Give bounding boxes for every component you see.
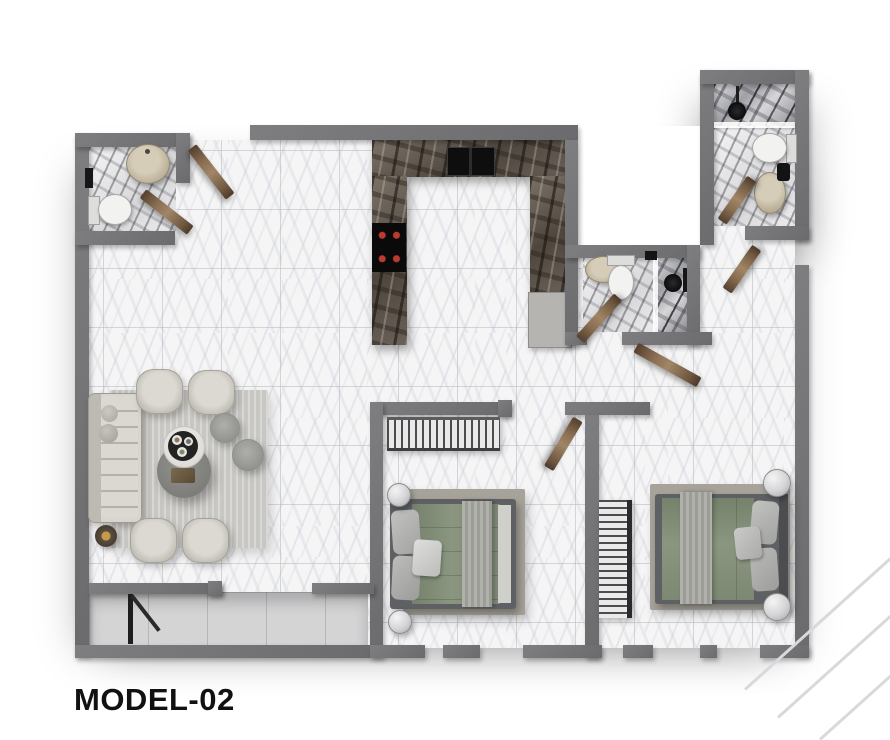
nightstand-bedroom2-bottom (763, 593, 791, 621)
armchair-top-1 (136, 369, 183, 414)
shower-head-bath-tr (728, 102, 746, 120)
table-tray-rect (171, 468, 195, 483)
pouf-2 (232, 439, 264, 471)
wall-bedrooms-divider (585, 415, 599, 658)
floor-shower-top-right (714, 84, 795, 126)
tray-plate-2 (184, 437, 193, 446)
shower-glass-bath-mid (653, 258, 658, 332)
wall-bedroom1-left (370, 402, 383, 658)
kitchen-cooktop (372, 223, 406, 272)
shower-head-bath-mid (664, 274, 682, 292)
wall-bath-tr-left (700, 70, 714, 245)
toilet-bath-tl (98, 194, 132, 225)
wall-bedroom1-top-cap (498, 400, 512, 417)
toilet-tank-bath-tr (786, 134, 797, 163)
wall-bedroom1-top (370, 402, 510, 415)
toilet-bath-tr (752, 133, 787, 163)
wall-right-outer (795, 265, 809, 655)
sofa-pillow-1 (101, 405, 118, 422)
tray-plate-3 (177, 447, 187, 457)
pouf-1 (210, 413, 240, 443)
wall-midbath-bottom (622, 332, 712, 345)
bed2-headboard (779, 494, 788, 604)
kitchen-counter-right (530, 176, 570, 292)
kitchen-sink (447, 147, 495, 176)
tray-plate-1 (172, 435, 182, 445)
wall-top-main (250, 125, 578, 140)
bed1-accent-pillow (412, 539, 442, 577)
wall-bath-tr-right (795, 70, 809, 240)
wall-balcony-inner-right (312, 583, 374, 594)
wall-bath-tl-bottom (75, 231, 175, 245)
wall-bottom-seg1 (370, 645, 425, 658)
bed1-foot-sheet (498, 505, 511, 603)
wall-bottom-seg4 (623, 645, 653, 658)
wardrobe-bedroom2 (599, 500, 632, 618)
towel-hook-bath-mid (645, 251, 657, 260)
bed2-throw (680, 492, 712, 604)
nightstand-bedroom1-bottom (388, 610, 412, 634)
wall-bottom-seg3 (523, 645, 602, 658)
wardrobe-bedroom1 (387, 417, 500, 451)
wall-bottom-seg5 (700, 645, 717, 658)
nightstand-bedroom2-top (763, 469, 791, 497)
wall-bath-tr-bottom (745, 226, 809, 240)
wall-bottom-balcony (75, 645, 370, 658)
armchair-bottom-2 (182, 518, 229, 563)
wall-bottom-seg2 (443, 645, 480, 658)
towel-rail-bath-tr (777, 163, 790, 181)
wall-bedrooms-t-horizontal (565, 402, 650, 415)
wall-bath-tl-right (176, 133, 190, 183)
faucet-bath-tl (145, 149, 150, 154)
wall-kitchen-void (565, 140, 578, 345)
bed1-throw (462, 501, 492, 607)
wall-balcony-inner-left (89, 583, 222, 594)
shower-glass-bath-tr (714, 122, 795, 128)
wall-bath-tr-top (700, 70, 809, 84)
sofa-pillow-2 (99, 424, 118, 443)
void-shaft (578, 126, 700, 245)
bed2-accent-pillow (733, 526, 762, 561)
watermark-line-3 (819, 618, 890, 740)
shower-fixture-bath-mid (683, 268, 687, 292)
wall-fixture-bath-tl (85, 168, 93, 188)
armchair-bottom-1 (130, 518, 177, 563)
plan-title: MODEL-02 (74, 682, 235, 718)
nightstand-bedroom1-top (387, 483, 411, 507)
armchair-top-2 (188, 370, 235, 415)
balcony-glass-frame (128, 594, 133, 644)
floor-plan-canvas: MODEL-02 (0, 0, 890, 740)
wall-left-outer (75, 133, 89, 655)
wall-midbath-right (687, 245, 700, 345)
wall-bath-tl-top (75, 133, 190, 147)
gold-side-table (95, 525, 117, 547)
wall-balcony-inner-cap (208, 581, 222, 596)
